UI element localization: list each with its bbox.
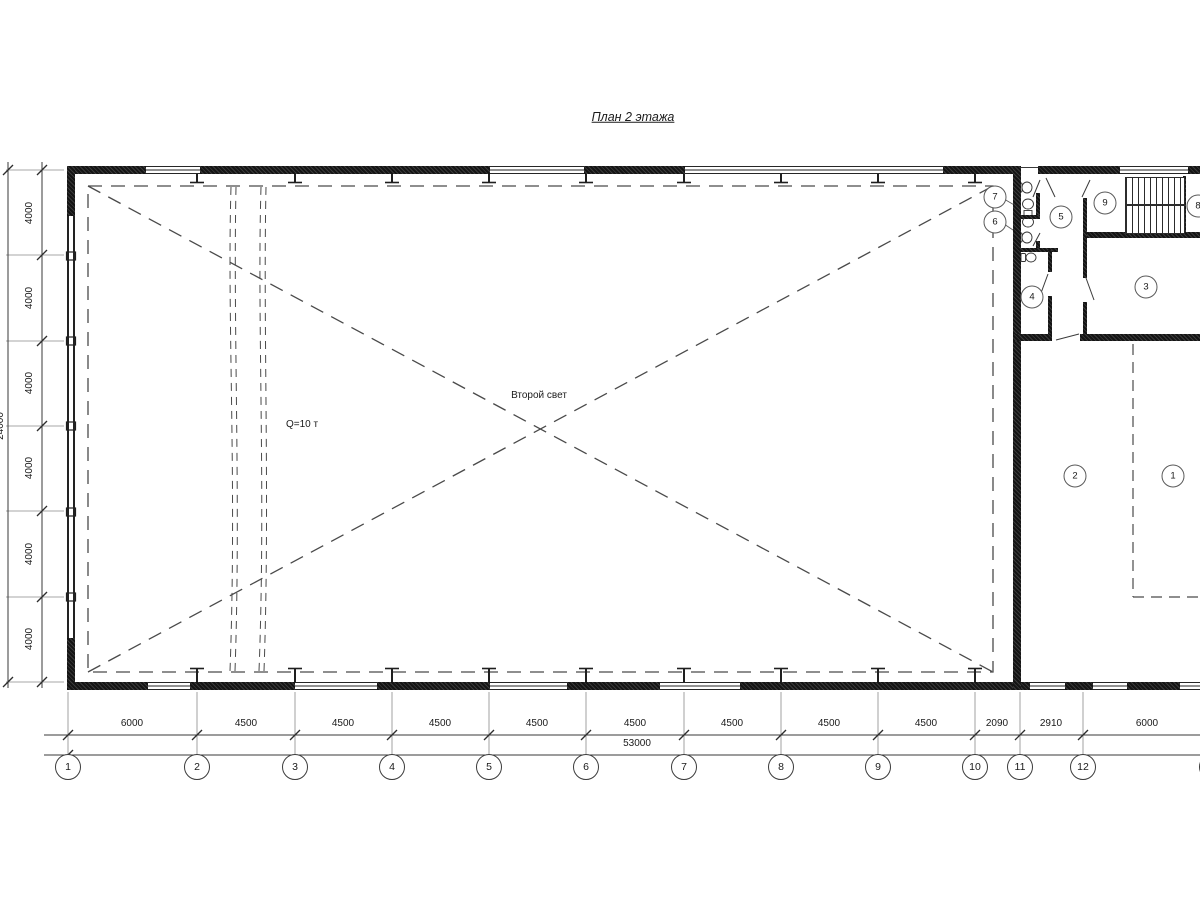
drawing-title: План 2 этажа bbox=[592, 111, 675, 124]
room-number-bubble: 4 bbox=[1021, 286, 1044, 309]
window-segment bbox=[685, 166, 943, 174]
floor-plan-sheet: План 2 этажа Второй свет Q=10 т 6000 450… bbox=[0, 0, 1200, 900]
toilet-icon bbox=[1021, 254, 1026, 262]
wall-hall-right bbox=[1013, 166, 1021, 690]
dim-label: 4500 bbox=[624, 719, 646, 729]
dim-label: 4500 bbox=[915, 719, 937, 729]
room-number-bubble: 3 bbox=[1135, 276, 1158, 299]
wall-corridor bbox=[1083, 302, 1087, 336]
wall-room4 bbox=[1048, 296, 1052, 335]
window-segment bbox=[1030, 682, 1065, 690]
dim-label-vertical: 4000 bbox=[25, 543, 35, 565]
grid-axis-bubble: 11 bbox=[1007, 754, 1033, 780]
dim-label: 6000 bbox=[1136, 719, 1158, 729]
second-light-dashed-outline bbox=[88, 186, 993, 672]
wall-corridor bbox=[1083, 198, 1087, 278]
wall-left bbox=[67, 174, 75, 682]
window-segment bbox=[295, 682, 377, 690]
window-segment bbox=[1120, 166, 1188, 174]
window-segment bbox=[1180, 682, 1200, 690]
dim-label-vertical: 4000 bbox=[25, 372, 35, 394]
wall-segment bbox=[1065, 682, 1093, 690]
wall-segment bbox=[740, 682, 1030, 690]
window-segment bbox=[146, 166, 200, 174]
grid-axis-bubble: 3 bbox=[282, 754, 308, 780]
wall-segment bbox=[67, 682, 148, 690]
room-number-bubble: 9 bbox=[1094, 192, 1117, 215]
wall-segment bbox=[1127, 682, 1180, 690]
dim-label: 2090 bbox=[986, 719, 1008, 729]
grid-axis-bubble: 8 bbox=[768, 754, 794, 780]
window-segment bbox=[490, 166, 584, 174]
room-number-bubble: 7 bbox=[984, 186, 1007, 209]
room-number-bubble: 2 bbox=[1064, 465, 1087, 488]
dim-label: 4500 bbox=[721, 719, 743, 729]
grid-axis-bubble: 1 bbox=[55, 754, 81, 780]
window-segment bbox=[660, 682, 740, 690]
grid-axis-bubble: 5 bbox=[476, 754, 502, 780]
dim-label: 4500 bbox=[235, 719, 257, 729]
dim-label-vertical: 4000 bbox=[25, 287, 35, 309]
dim-label: 4500 bbox=[526, 719, 548, 729]
grid-axis-bubble: 12 bbox=[1070, 754, 1096, 780]
crane-capacity-label: Q=10 т bbox=[286, 420, 318, 430]
wall-segment bbox=[943, 166, 1021, 174]
wall-room2-top bbox=[1013, 334, 1052, 341]
dim-label: 6000 bbox=[121, 719, 143, 729]
wall-room2-top bbox=[1080, 334, 1200, 341]
window-segment bbox=[490, 682, 567, 690]
room-number-bubble: 5 bbox=[1050, 206, 1073, 229]
columns-bottom bbox=[190, 669, 982, 683]
room-number-bubble: 1 bbox=[1162, 465, 1185, 488]
dim-total-label-vertical: 24000 bbox=[0, 412, 6, 440]
stair-flight-lower bbox=[1125, 205, 1185, 234]
room-number-bubble: 6 bbox=[984, 211, 1007, 234]
columns-top bbox=[190, 174, 982, 183]
grid-axis-bubble: 9 bbox=[865, 754, 891, 780]
wall-wc bbox=[1021, 248, 1058, 252]
wall-segment bbox=[567, 682, 660, 690]
dim-label-vertical: 4000 bbox=[25, 628, 35, 650]
window-segment bbox=[148, 682, 190, 690]
wall-segment bbox=[1188, 166, 1200, 174]
crane-runway-lines bbox=[230, 187, 267, 671]
second-light-label: Второй свет bbox=[511, 391, 567, 401]
wall-wc bbox=[1036, 193, 1040, 215]
wall-segment bbox=[200, 166, 490, 174]
dimension-ticks bbox=[3, 165, 1088, 760]
wall-room4 bbox=[1048, 250, 1052, 272]
dim-label: 2910 bbox=[1040, 719, 1062, 729]
grid-axis-bubble: 2 bbox=[184, 754, 210, 780]
wall-wc bbox=[1021, 215, 1040, 219]
dim-label-vertical: 4000 bbox=[25, 457, 35, 479]
grid-axis-bubble: 7 bbox=[671, 754, 697, 780]
extension-lines-left bbox=[6, 170, 64, 682]
wall-corner bbox=[67, 638, 75, 690]
dim-label: 4500 bbox=[429, 719, 451, 729]
dim-label: 4500 bbox=[332, 719, 354, 729]
wall-segment bbox=[1038, 166, 1120, 174]
grid-axis-bubble: 6 bbox=[573, 754, 599, 780]
dim-label-vertical: 4000 bbox=[25, 202, 35, 224]
dim-label: 4500 bbox=[818, 719, 840, 729]
stair-flight-upper bbox=[1125, 177, 1185, 205]
wall-segment bbox=[67, 166, 146, 174]
dim-total-label: 53000 bbox=[623, 739, 651, 749]
window-segment bbox=[1093, 682, 1127, 690]
grid-axis-bubble: 10 bbox=[962, 754, 988, 780]
wall-segment bbox=[190, 682, 295, 690]
wall-segment bbox=[377, 682, 490, 690]
wall-corner bbox=[67, 166, 75, 216]
wall-segment bbox=[584, 166, 685, 174]
grid-axis-bubble: 4 bbox=[379, 754, 405, 780]
